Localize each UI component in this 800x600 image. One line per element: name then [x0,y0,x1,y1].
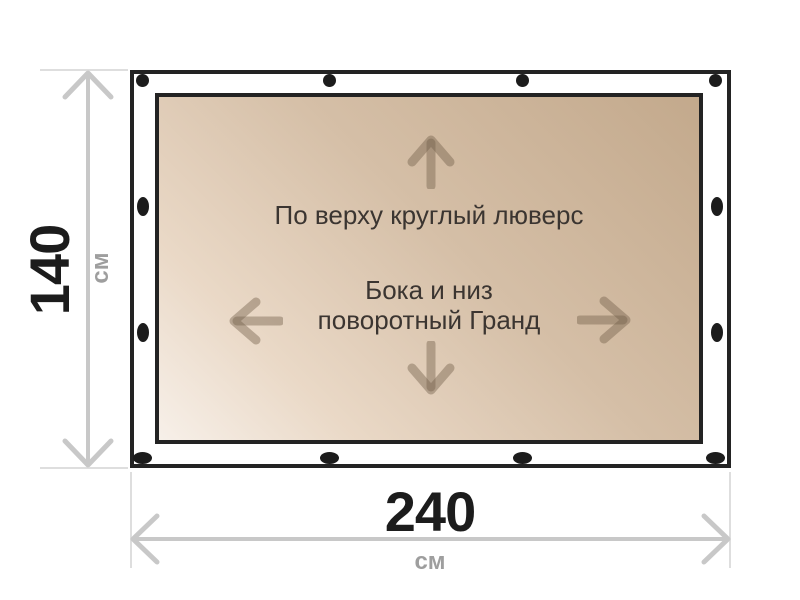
up-arrow-icon [404,131,458,189]
note-center-line2: поворотный Гранд [155,307,703,333]
grommet-top-2 [323,74,336,87]
grommet-bottom-2 [320,452,339,464]
grommet-top-3 [516,74,529,87]
down-arrow-icon [404,341,458,399]
width-unit: см [330,549,530,575]
note-top-edge: По верху круглый люверс [155,202,703,228]
grommet-bottom-3 [513,452,532,464]
grommet-right-2 [711,323,723,342]
arrowhead-right-icon [704,516,728,562]
grommet-left-1 [137,197,149,216]
height-value: 140 [20,195,80,345]
note-center-line1: Бока и низ [155,277,703,303]
height-unit: см [88,238,114,298]
grommet-left-2 [137,323,149,342]
grommet-top-4 [709,74,722,87]
grommet-bottom-4 [706,452,725,464]
grommet-top-1 [136,74,149,87]
arrowhead-up-icon [65,73,111,97]
grommet-bottom-1 [133,452,152,464]
arrowhead-left-icon [133,516,157,562]
arrowhead-down-icon [65,441,111,465]
product-diagram: 140 см 240 см [0,0,800,600]
width-value: 240 [330,482,530,542]
grommet-right-1 [711,197,723,216]
